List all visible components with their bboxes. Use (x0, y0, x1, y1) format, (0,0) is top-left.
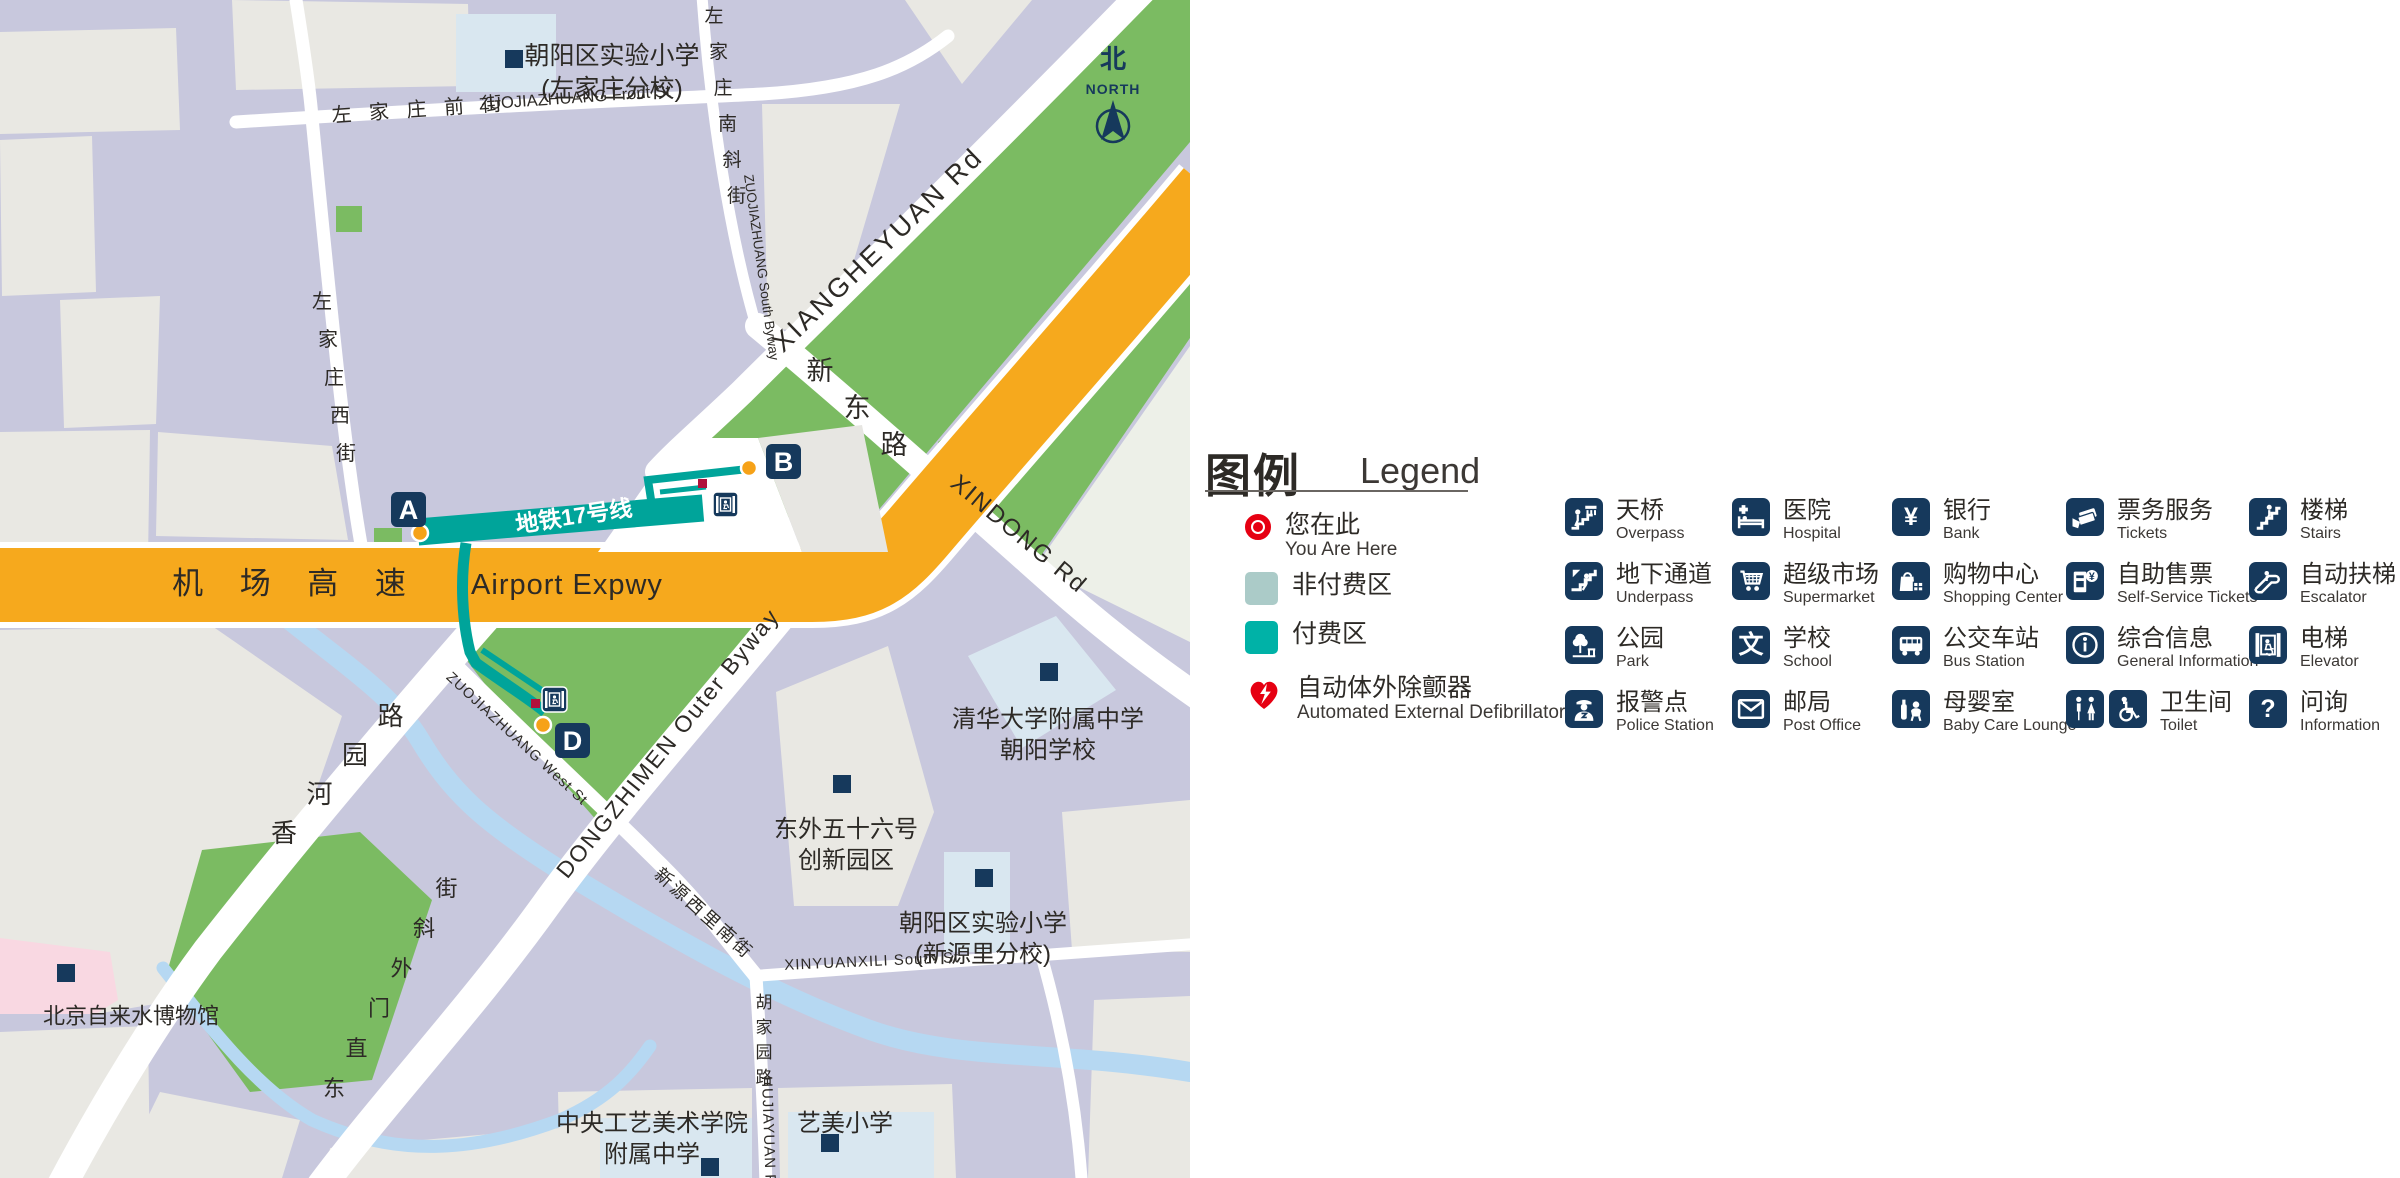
supermarket-icon (1732, 562, 1770, 600)
legend-item-unpaid-area-swatch: 非付费区 (1245, 572, 1392, 605)
street-label-char: 家 (709, 41, 728, 63)
general-information-icon (2066, 626, 2104, 664)
legend-grid-item-underpass: 地下通道Underpass (1565, 562, 1712, 607)
place-label-line: 朝阳区实验小学 (524, 42, 699, 70)
legend-grid-item-general-information: 综合信息General Information (2066, 626, 2258, 671)
legend-grid-item-tickets: 票务服务Tickets (2066, 498, 2213, 543)
place-label-line: 东外五十六号 (774, 816, 918, 843)
hospital-icon (1732, 498, 1770, 536)
you-are-here-marker (1245, 514, 1271, 540)
shopping-center-icon (1892, 562, 1930, 600)
legend-grid-label-cn: 邮局 (1783, 690, 1861, 716)
street-label-char: 庄 (713, 77, 732, 99)
legend-grid-item-escalator: 自动扶梯Escalator (2249, 562, 2396, 607)
station-area-map-page: 地铁17号线 朝阳区实验小学(左家庄分校)清华大学附属中学朝阳学校东外五十六号创… (0, 0, 2400, 1178)
street-label-char: 西 (330, 405, 350, 427)
legend-grid-label-cn: 电梯 (2300, 626, 2359, 652)
legend-grid-item-police-station: 报警点Police Station (1565, 690, 1714, 735)
legend-item-you-are-here-marker: 您在此You Are Here (1245, 512, 1397, 561)
street-label-char: 斜 (722, 149, 741, 171)
unpaid-area-swatch (1245, 572, 1278, 605)
place-label-line: 清华大学附属中学 (952, 706, 1144, 733)
street-label-char: 园 (756, 1043, 773, 1062)
police-station-icon (1565, 690, 1603, 728)
legend-divider (1205, 490, 1468, 492)
street-label-char: 庄 (324, 366, 344, 389)
bus-station-icon (1892, 626, 1930, 664)
street-label-char: 东 (844, 393, 871, 423)
place-label-line: 朝阳学校 (1000, 737, 1096, 764)
place-label-line: 北京自来水博物馆 (43, 1004, 219, 1029)
map-canvas[interactable]: 地铁17号线 朝阳区实验小学(左家庄分校)清华大学附属中学朝阳学校东外五十六号创… (0, 0, 1190, 1178)
poi-marker (57, 964, 75, 982)
legend-grid-item-stairs: 楼梯Stairs (2249, 498, 2348, 543)
street-label-char: 东 (323, 1076, 345, 1101)
place-label-line: 中央工艺美术学院 (556, 1110, 748, 1137)
legend-grid-label-en: Escalator (2300, 588, 2396, 607)
street-label-char: 街 (336, 442, 356, 465)
svg-text:¥: ¥ (2089, 571, 2095, 583)
street-label-char: 街 (435, 876, 457, 901)
legend-grid-item-overpass: 天桥Overpass (1565, 498, 1684, 543)
legend-item-label-cn: 自动体外除颤器 (1297, 675, 1565, 702)
legend-grid-label-en: Self-Service Tickets (2117, 588, 2257, 607)
legend-grid-item-self-service-tickets: ¥自助售票Self-Service Tickets (2066, 562, 2257, 607)
place-label-line: 朝阳区实验小学 (899, 910, 1067, 937)
legend-grid-item-bus-station: 公交车站Bus Station (1892, 626, 2039, 671)
legend-grid-label-en: Post Office (1783, 716, 1861, 735)
poi-marker (701, 1158, 719, 1176)
exit-letter: D (563, 726, 583, 756)
street-label-char: 路 (377, 701, 403, 731)
street-label-char: 路 (756, 1068, 773, 1087)
legend-grid-label-en: Police Station (1616, 716, 1714, 735)
legend-grid-label-en: Toilet (2160, 716, 2232, 735)
street-label-char: 街 (727, 185, 746, 207)
street-label-char: 家 (318, 328, 338, 351)
legend-grid-label-en: Bus Station (1943, 652, 2039, 671)
exit-dot (535, 717, 551, 733)
legend-grid-item-shopping-center: 购物中心Shopping Center (1892, 562, 2063, 607)
exit-letter: A (399, 495, 419, 525)
legend-item-label-cn: 付费区 (1292, 621, 1367, 648)
legend-item-label-en: You Are Here (1285, 539, 1397, 561)
legend-grid-label-en: Baby Care Lounge (1943, 716, 2076, 735)
street-label-char: 园 (342, 740, 368, 770)
street-label-char: 外 (390, 956, 412, 981)
legend-grid-label-en: Hospital (1783, 524, 1841, 543)
poi-marker (975, 869, 993, 887)
legend-title-cn: 图例 (1205, 440, 1301, 506)
bank-icon: ¥ (1892, 498, 1930, 536)
legend-grid-label-cn: 公园 (1616, 626, 1664, 652)
legend-title-en: Legend (1360, 450, 1480, 492)
legend-grid-label-en: Shopping Center (1943, 588, 2063, 607)
street-label-char: 南 (718, 113, 737, 135)
legend-grid-label-cn: 公交车站 (1943, 626, 2039, 652)
street-label-char: 门 (368, 996, 390, 1021)
legend-grid-label-en: Underpass (1616, 588, 1712, 607)
street-label-char: 路 (881, 430, 908, 460)
legend-grid-item-supermarket: 超级市场Supermarket (1732, 562, 1879, 607)
information-question-icon: ? (2249, 690, 2287, 728)
legend-item-label-cn: 您在此 (1285, 512, 1397, 539)
self-service-tickets-icon: ¥ (2066, 562, 2104, 600)
escalator-icon (2249, 562, 2287, 600)
toilet-mf-icon (2066, 690, 2104, 728)
legend-grid-label-cn: 学校 (1783, 626, 1832, 652)
poi-marker (505, 50, 523, 68)
legend-grid-label-cn: 报警点 (1616, 690, 1714, 716)
post-office-icon (1732, 690, 1770, 728)
street-label-char: 左 (704, 5, 723, 27)
legend-item-aed-heart: 自动体外除颤器Automated External Defibrillator (1245, 675, 1565, 724)
place-label-line: 创新园区 (798, 847, 894, 874)
exit-letter: B (774, 447, 794, 477)
legend-grid-item-toilet: 卫生间Toilet (2066, 690, 2232, 735)
legend-grid-label-en: Bank (1943, 524, 1991, 543)
legend-item-label-en: Automated External Defibrillator (1297, 702, 1565, 724)
legend-grid-label-en: Stairs (2300, 524, 2348, 543)
legend-grid-item-bank: ¥银行Bank (1892, 498, 1991, 543)
legend-grid-label-en: Park (1616, 652, 1664, 671)
street-label-char: 斜 (413, 916, 435, 941)
aed-map-marker (531, 699, 540, 708)
legend-grid-label-cn: 票务服务 (2117, 498, 2213, 524)
legend-grid-label-en: Information (2300, 716, 2380, 735)
street-label-char: 家 (756, 1018, 773, 1037)
legend-grid-item-school: 文学校School (1732, 626, 1832, 671)
legend-grid-label-en: Overpass (1616, 524, 1684, 543)
street-label-char: 香 (271, 818, 297, 848)
place-label-line: 附属中学 (604, 1141, 700, 1168)
aed-map-marker (698, 479, 707, 488)
legend-grid-item-baby-care-lounge: 母婴室Baby Care Lounge (1892, 690, 2076, 735)
legend-grid-label-en: School (1783, 652, 1832, 671)
park-icon (1565, 626, 1603, 664)
poi-marker (833, 775, 851, 793)
street-label-char: 胡 (756, 993, 773, 1012)
legend-grid-item-park: 公园Park (1565, 626, 1664, 671)
poi-marker (1040, 663, 1058, 681)
legend-grid-label-cn: 超级市场 (1783, 562, 1879, 588)
street-label-char: 左 (312, 290, 332, 313)
street-label-char: 河 (306, 779, 332, 809)
legend-grid-label-cn: 卫生间 (2160, 690, 2232, 716)
legend-grid-label-cn: 医院 (1783, 498, 1841, 524)
legend-grid-label-cn: 银行 (1943, 498, 1991, 524)
legend-grid-label-cn: 综合信息 (2117, 626, 2258, 652)
legend-grid-item-information-question: ?问询Information (2249, 690, 2380, 735)
street-label-char: 新 (807, 356, 834, 386)
exit-dot (741, 460, 757, 476)
legend-panel: 图例 Legend 您在此You Are Here非付费区付费区自动体外除颤器A… (1190, 0, 2400, 1178)
north-en: NORTH (1086, 81, 1141, 97)
north-cn: 北 (1100, 44, 1126, 74)
exit-dot (412, 525, 428, 541)
aed-heart (1245, 675, 1283, 718)
elevator-icon (2249, 626, 2287, 664)
legend-grid-label-en: Elevator (2300, 652, 2359, 671)
legend-grid-label-cn: 地下通道 (1616, 562, 1712, 588)
street-label: 机 场 高 速 (172, 566, 420, 601)
elevator-icon (713, 492, 738, 517)
legend-grid-label-cn: 楼梯 (2300, 498, 2348, 524)
school-icon: 文 (1732, 626, 1770, 664)
overpass-icon (1565, 498, 1603, 536)
legend-grid-label-cn: 问询 (2300, 690, 2380, 716)
legend-grid-label-cn: 自助售票 (2117, 562, 2257, 588)
street-label: Airport Expwy (471, 569, 663, 601)
legend-item-paid-area-swatch: 付费区 (1245, 621, 1367, 654)
elevator-icon (542, 687, 567, 712)
stairs-icon (2249, 498, 2287, 536)
legend-item-label-cn: 非付费区 (1292, 572, 1392, 599)
bank-glyph: ¥ (1904, 505, 1918, 530)
paid-area-swatch (1245, 621, 1278, 654)
legend-grid-label-en: Supermarket (1783, 588, 1879, 607)
legend-grid-label-en: General Information (2117, 652, 2258, 671)
legend-grid-item-post-office: 邮局Post Office (1732, 690, 1861, 735)
tickets-icon (2066, 498, 2104, 536)
street-label-char: 直 (345, 1036, 367, 1061)
legend-grid-label-cn: 自动扶梯 (2300, 562, 2396, 588)
legend-grid-item-hospital: 医院Hospital (1732, 498, 1841, 543)
legend-grid-label-cn: 购物中心 (1943, 562, 2063, 588)
underpass-icon (1565, 562, 1603, 600)
baby-care-lounge-icon (1892, 690, 1930, 728)
legend-grid-label-en: Tickets (2117, 524, 2213, 543)
place-label-line: 艺美小学 (797, 1110, 893, 1137)
street-label: HUJIAYUAN Rd (758, 1076, 779, 1178)
legend-grid-label-cn: 天桥 (1616, 498, 1684, 524)
information-question-glyph: ? (2260, 697, 2275, 722)
legend-grid-label-cn: 母婴室 (1943, 690, 2076, 716)
toilet-accessible-icon (2109, 690, 2147, 728)
school-glyph: 文 (1738, 633, 1763, 658)
legend-grid-item-elevator: 电梯Elevator (2249, 626, 2359, 671)
